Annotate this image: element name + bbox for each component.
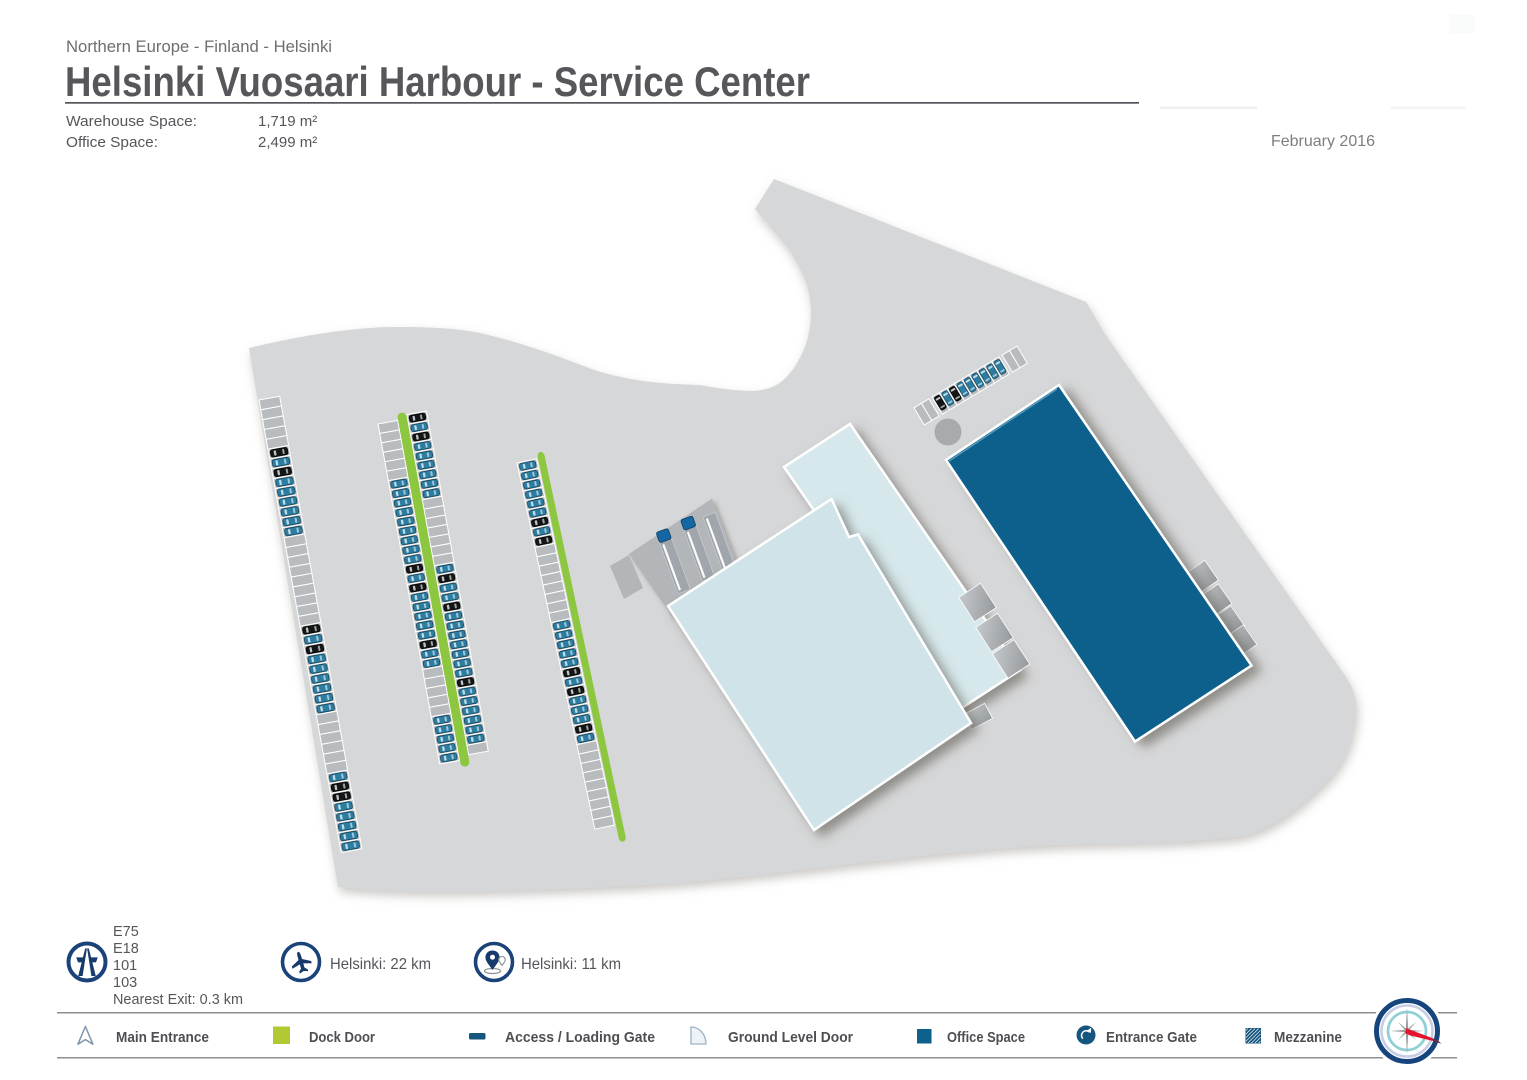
svg-text:Warehouse Space:: Warehouse Space: xyxy=(66,113,197,130)
svg-text:103: 103 xyxy=(113,975,137,991)
svg-text:Dock Door: Dock Door xyxy=(309,1029,375,1046)
svg-text:Mezzanine: Mezzanine xyxy=(1274,1029,1342,1046)
svg-text:Helsinki Vuosaari Harbour - Se: Helsinki Vuosaari Harbour - Service Cent… xyxy=(65,58,810,105)
svg-text:E18: E18 xyxy=(113,941,139,957)
svg-text:Entrance Gate: Entrance Gate xyxy=(1106,1029,1197,1046)
svg-text:Northern Europe - Finland - He: Northern Europe - Finland - Helsinki xyxy=(66,38,332,56)
svg-text:February 2016: February 2016 xyxy=(1271,133,1375,150)
svg-text:Office Space: Office Space xyxy=(947,1029,1025,1046)
svg-text:Access / Loading Gate: Access / Loading Gate xyxy=(505,1029,655,1046)
svg-text:Helsinki: 22 km: Helsinki: 22 km xyxy=(330,956,431,973)
svg-text:E75: E75 xyxy=(113,924,139,940)
svg-text:Office Space:: Office Space: xyxy=(66,134,158,151)
svg-text:2,499 m²: 2,499 m² xyxy=(258,134,317,151)
svg-text:101: 101 xyxy=(113,958,137,974)
svg-text:Nearest Exit: 0.3 km: Nearest Exit: 0.3 km xyxy=(113,992,243,1008)
svg-text:Ground Level Door: Ground Level Door xyxy=(728,1029,853,1046)
svg-text:Main Entrance: Main Entrance xyxy=(116,1029,209,1046)
svg-text:1,719 m²: 1,719 m² xyxy=(258,113,317,130)
svg-text:Helsinki: 11 km: Helsinki: 11 km xyxy=(521,956,621,973)
